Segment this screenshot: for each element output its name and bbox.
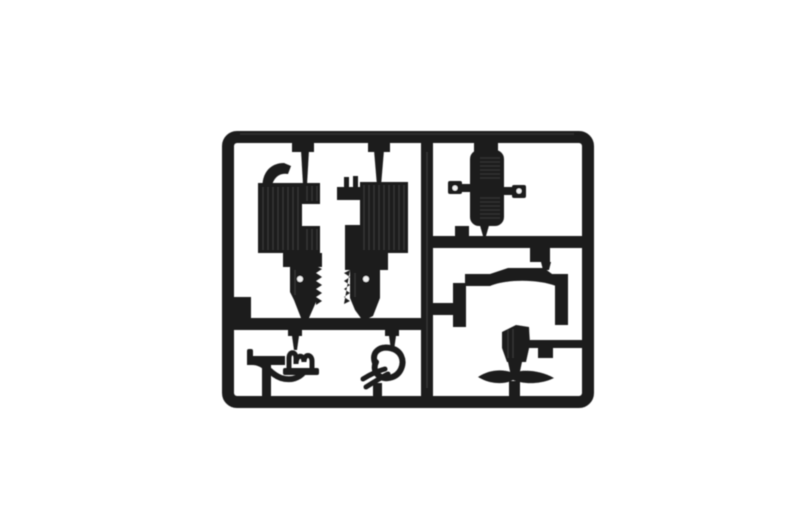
sprue bbox=[228, 134, 588, 402]
bracket-top-bar bbox=[465, 268, 568, 286]
mold-hole bbox=[363, 276, 369, 282]
part-body bbox=[337, 182, 408, 270]
engine-part-right bbox=[337, 143, 408, 321]
nub-detail bbox=[344, 177, 349, 187]
bracket-right-leg bbox=[555, 283, 568, 325]
arched-bracket-part bbox=[427, 248, 568, 327]
curled-strokes bbox=[252, 348, 403, 387]
seat-part bbox=[478, 325, 584, 400]
nub-detail bbox=[353, 176, 358, 187]
mold-hole bbox=[297, 276, 303, 282]
bracket-connector bbox=[427, 303, 455, 315]
gate-tab bbox=[288, 324, 302, 336]
gate-tab bbox=[385, 324, 399, 336]
hanger-stub bbox=[530, 248, 550, 262]
runner-stub bbox=[455, 226, 469, 237]
part-stem bbox=[373, 383, 382, 398]
spring-serration bbox=[316, 266, 322, 305]
gate-stem bbox=[374, 150, 384, 186]
part-shaft bbox=[290, 267, 316, 318]
gate-stem bbox=[292, 336, 299, 350]
sprue-photo bbox=[0, 0, 800, 530]
mold-hole bbox=[452, 185, 457, 190]
gate-bar bbox=[528, 340, 584, 348]
sprue-parts bbox=[232, 143, 584, 400]
seat-box bbox=[502, 325, 530, 362]
gate-tab bbox=[538, 348, 553, 358]
gate-stem bbox=[301, 150, 309, 185]
spring-serration bbox=[344, 270, 350, 304]
seat-stem bbox=[509, 381, 520, 400]
corner-square-tab bbox=[232, 297, 251, 320]
bottom-gate bbox=[479, 222, 490, 236]
photo-canvas bbox=[0, 0, 800, 530]
ribbed-tank-part bbox=[448, 143, 526, 237]
mold-hole bbox=[516, 188, 521, 193]
